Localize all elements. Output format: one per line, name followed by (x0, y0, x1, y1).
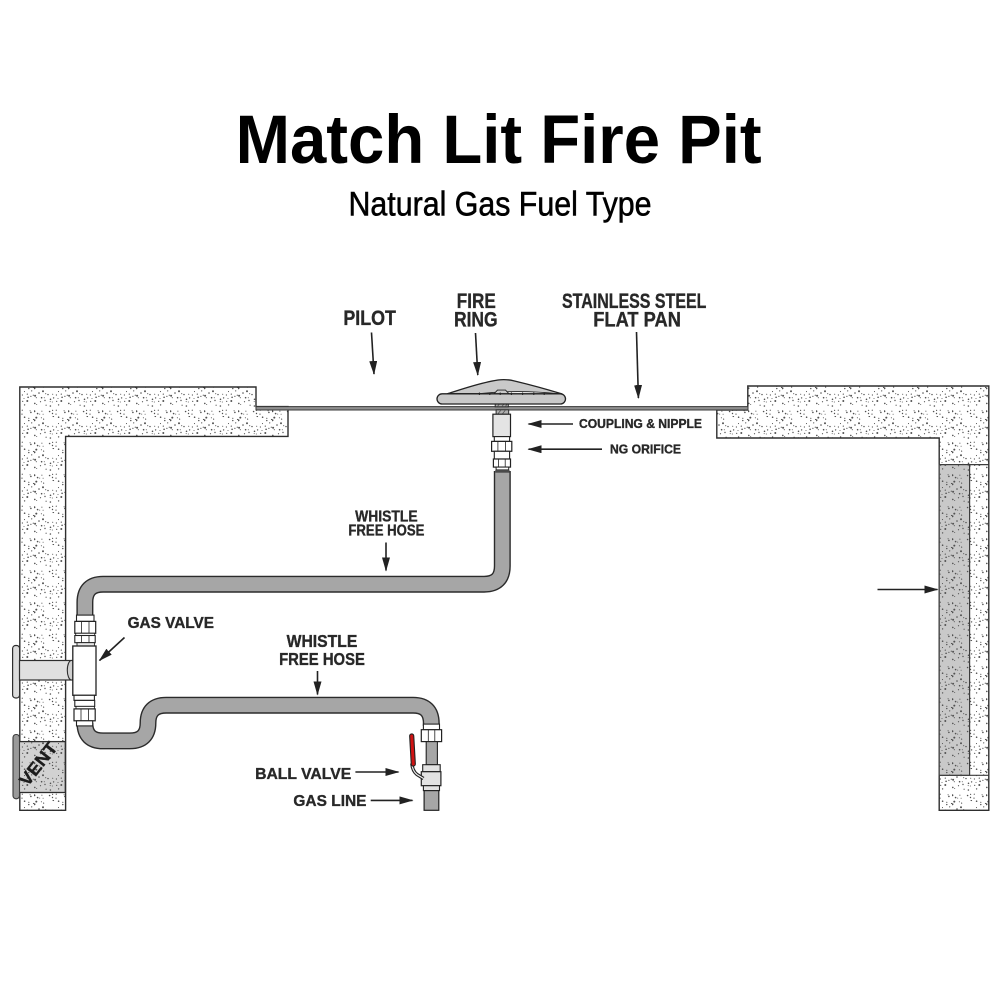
svg-text:Natural Gas Fuel Type: Natural Gas Fuel Type (349, 186, 652, 224)
svg-text:GAS VALVE: GAS VALVE (128, 615, 215, 632)
svg-text:FLAT PAN: FLAT PAN (593, 308, 681, 331)
svg-text:WHISTLE: WHISTLE (287, 631, 358, 651)
svg-text:NG ORIFICE: NG ORIFICE (610, 442, 681, 457)
svg-text:RING: RING (454, 308, 498, 331)
svg-text:COUPLING & NIPPLE: COUPLING & NIPPLE (579, 416, 702, 431)
svg-text:GAS LINE: GAS LINE (293, 793, 366, 810)
svg-text:Match Lit Fire Pit: Match Lit Fire Pit (236, 101, 762, 178)
svg-text:BALL VALVE: BALL VALVE (255, 766, 351, 783)
svg-text:PILOT: PILOT (343, 307, 396, 330)
svg-text:FREE HOSE: FREE HOSE (348, 523, 424, 540)
svg-text:FREE HOSE: FREE HOSE (279, 649, 365, 669)
